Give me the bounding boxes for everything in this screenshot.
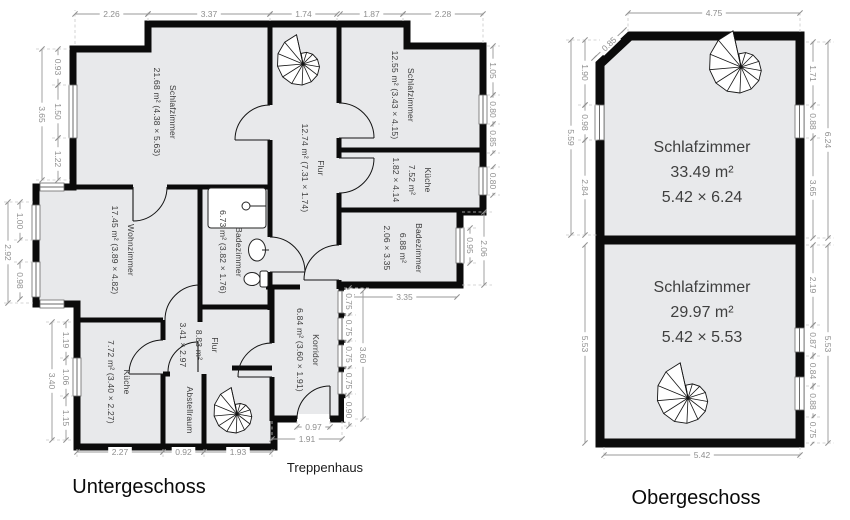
dimension-label: 1.22 [53, 147, 63, 171]
svg-text:0.98: 0.98 [15, 272, 25, 289]
svg-text:3.40: 3.40 [47, 373, 57, 390]
svg-text:0.80: 0.80 [488, 101, 498, 118]
dimension-label: 1.15 [61, 406, 71, 430]
svg-text:1.93: 1.93 [230, 447, 247, 457]
svg-text:2.92: 2.92 [3, 244, 13, 261]
svg-text:2.28: 2.28 [435, 9, 452, 19]
svg-text:0.92: 0.92 [175, 447, 192, 457]
dimension-label: 1.06 [61, 365, 71, 389]
dimension-label: 1.19 [61, 328, 71, 352]
dimension-label: 0.80 [488, 98, 498, 122]
dimension-label: 0.92 [172, 447, 196, 457]
room-label: Küche [423, 167, 433, 192]
dimension-label: 1.50 [53, 100, 63, 124]
dimension-label: 1.00 [15, 209, 25, 233]
dimension-label: 0.88 [808, 110, 818, 134]
dimension-label: 0.85 [488, 127, 498, 151]
dimension-label: 5.42 [690, 450, 714, 460]
svg-text:2.84: 2.84 [580, 179, 590, 196]
room-label: 29.97 m² [670, 304, 734, 321]
dimension-label: 0.98 [580, 111, 590, 135]
svg-text:2.27: 2.27 [112, 447, 129, 457]
svg-text:1.05: 1.05 [488, 62, 498, 79]
room-label: Schlafzimmer [168, 85, 178, 139]
room-label: 6.88 m² [398, 233, 408, 263]
svg-text:1.00: 1.00 [15, 213, 25, 230]
svg-text:5.42: 5.42 [694, 450, 711, 460]
svg-text:1.19: 1.19 [61, 332, 71, 349]
svg-text:3.65: 3.65 [37, 106, 47, 123]
svg-text:0.88: 0.88 [808, 113, 818, 130]
dimension-label: 0.75 [344, 316, 354, 340]
svg-text:0.75: 0.75 [344, 320, 354, 337]
room-label: 8.83 m² [194, 330, 204, 360]
dimension-label: 4.75 [702, 8, 726, 18]
svg-text:0.75: 0.75 [344, 373, 354, 390]
room-label: 3.41 × 2.97 [178, 323, 188, 368]
dimension-label: 3.40 [47, 369, 57, 393]
room-label: Badezimmer [234, 227, 244, 277]
svg-text:0.75: 0.75 [344, 293, 354, 310]
dimension-label: 2.19 [808, 273, 818, 297]
svg-text:5.59: 5.59 [566, 129, 576, 146]
svg-text:1.06: 1.06 [61, 369, 71, 386]
dimension-label: 2.84 [580, 176, 590, 200]
dimension-label: 1.71 [808, 62, 818, 86]
room-label: Badezimmer [414, 223, 424, 273]
untergeschoss-plan: Schlafzimmer 21.68 m² (4.38 × 5.63) Schl… [32, 24, 487, 447]
dimension-label: 1.90 [580, 61, 590, 85]
svg-text:3.65: 3.65 [808, 180, 818, 197]
dimension-label: 1.05 [488, 59, 498, 83]
room-label: 12.74 m² (7.31 × 1.74) [300, 124, 310, 213]
svg-text:0.88: 0.88 [808, 393, 818, 410]
svg-text:0.85: 0.85 [488, 130, 498, 147]
svg-text:0.87: 0.87 [808, 332, 818, 349]
dimension-label: 3.37 [197, 9, 221, 19]
dimension-label: 3.60 [358, 343, 368, 367]
svg-text:6.24: 6.24 [823, 132, 833, 149]
dimension-label: 0.87 [808, 329, 818, 353]
room-label: 21.68 m² (4.38 × 5.63) [152, 68, 162, 157]
svg-text:1.87: 1.87 [363, 9, 380, 19]
room-label: 12.55 m² (3.43 × 4.15) [390, 51, 400, 140]
dimension-label: 1.93 [226, 447, 250, 457]
dimension-label: 0.75 [344, 343, 354, 367]
dimension-label: 0.90 [344, 398, 354, 422]
dimension-label: 0.98 [15, 269, 25, 293]
svg-text:1.74: 1.74 [295, 9, 312, 19]
dimension-label: 2.27 [108, 447, 132, 457]
svg-text:1.50: 1.50 [53, 103, 63, 120]
svg-text:5.53: 5.53 [580, 336, 590, 353]
svg-text:0.90: 0.90 [344, 402, 354, 419]
dimension-label: 1.74 [292, 9, 316, 19]
dimension-label: 0.95 [465, 234, 475, 258]
svg-text:0.98: 0.98 [580, 114, 590, 131]
dimension-label: 0.93 [53, 55, 63, 79]
floor-title-unter: Untergeschoss [72, 476, 205, 498]
dimension-label: 2.06 [479, 237, 489, 261]
svg-text:3.37: 3.37 [201, 9, 218, 19]
dimension-label: 0.75 [808, 418, 818, 442]
dimension-label: 3.65 [808, 176, 818, 200]
svg-text:1.71: 1.71 [808, 65, 818, 82]
dimension-label: 1.91 [295, 434, 319, 444]
svg-text:2.19: 2.19 [808, 277, 818, 294]
room-label: 6.84 m² (3.60 × 1.91) [295, 308, 305, 392]
dimension-label: 0.75 [344, 369, 354, 393]
stairwell-caption: Treppenhaus [287, 460, 364, 475]
bathtub-icon [208, 188, 266, 228]
svg-text:0.84: 0.84 [808, 363, 818, 380]
dimension-label: 0.80 [488, 169, 498, 193]
room-label: 1.82 × 4.14 [391, 158, 401, 203]
dimension-label: 5.53 [580, 332, 590, 356]
dimension-label: 5.53 [823, 332, 833, 356]
room-label: Abstellraum [185, 386, 195, 433]
dimension-label: 0.75 [344, 290, 354, 314]
dimension-label: 3.65 [37, 103, 47, 127]
floorplan-canvas: Schlafzimmer 21.68 m² (4.38 × 5.63) Schl… [0, 0, 850, 520]
room-label: Korridor [311, 334, 321, 366]
svg-text:1.91: 1.91 [299, 434, 316, 444]
dimension-label: 0.97 [302, 422, 326, 432]
dimension-label: 2.28 [431, 9, 455, 19]
dimension-label: 0.84 [808, 359, 818, 383]
room-label: Wohnzimmer [126, 224, 136, 276]
svg-text:0.97: 0.97 [305, 422, 322, 432]
room-label: 17.45 m² (3.89 × 4.82) [110, 206, 120, 295]
svg-text:0.80: 0.80 [488, 173, 498, 190]
room-label: 5.42 × 5.53 [662, 329, 743, 346]
dimension-label: 2.92 [3, 241, 13, 265]
room-label: 5.42 × 6.24 [662, 189, 743, 206]
svg-text:5.53: 5.53 [823, 336, 833, 353]
dimension-label: 0.88 [808, 390, 818, 414]
svg-text:1.15: 1.15 [61, 410, 71, 427]
room-label: Flur [210, 337, 220, 352]
room-label: 7.72 m² (3.40 × 2.27) [106, 340, 116, 424]
obergeschoss-plan: Schlafzimmer 33.49 m² 5.42 × 6.24 Schlaf… [595, 31, 804, 443]
svg-text:2.06: 2.06 [479, 240, 489, 257]
svg-text:4.75: 4.75 [706, 8, 723, 18]
svg-text:3.60: 3.60 [358, 347, 368, 364]
svg-text:1.22: 1.22 [53, 151, 63, 168]
room-label: Schlafzimmer [654, 279, 752, 296]
svg-text:0.75: 0.75 [344, 346, 354, 363]
svg-text:0.93: 0.93 [53, 59, 63, 76]
dimension-label: 2.26 [100, 9, 124, 19]
svg-text:0.75: 0.75 [808, 422, 818, 439]
room-label: Schlafzimmer [654, 139, 752, 156]
room-label: Flur [316, 160, 326, 175]
dimension-label: 6.24 [823, 128, 833, 152]
room-label: 33.49 m² [670, 164, 734, 181]
room-label: 7.52 m² [407, 165, 417, 195]
room-label: 2.06 × 3.35 [382, 226, 392, 271]
svg-text:3.35: 3.35 [396, 292, 413, 302]
svg-text:2.26: 2.26 [103, 9, 120, 19]
svg-text:0.95: 0.95 [465, 237, 475, 254]
dimension-label: 5.59 [566, 126, 576, 150]
dimension-label: 1.87 [360, 9, 384, 19]
floorplan-page: Schlafzimmer 21.68 m² (4.38 × 5.63) Schl… [0, 0, 850, 520]
svg-text:1.90: 1.90 [580, 64, 590, 81]
floor-title-ober: Obergeschoss [632, 487, 761, 509]
room-label: Schlafzimmer [406, 68, 416, 122]
toilet-icon [244, 271, 268, 287]
room-label: Küche [122, 369, 132, 394]
room-label: 6.73 m² (3.82 × 1.76) [218, 210, 228, 294]
dimension-label: 3.35 [393, 292, 417, 302]
